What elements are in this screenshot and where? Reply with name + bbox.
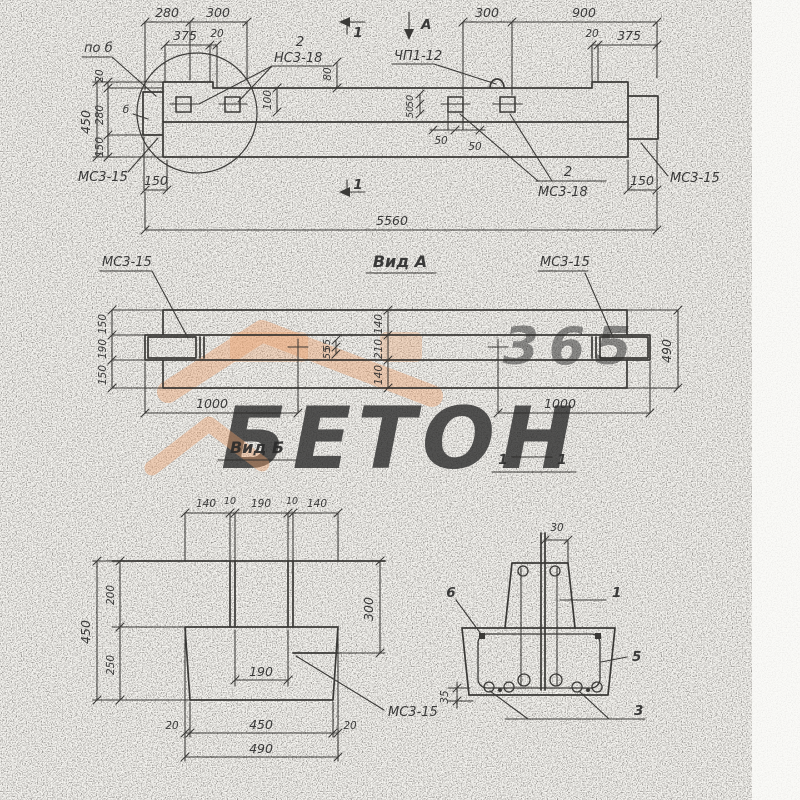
dim-mid-140-bottom: 140 [373,365,385,385]
section-1-1-left: 1 [498,452,507,468]
dim-10-right: 10 [286,496,298,507]
dim-375-left: 375 [173,28,197,43]
dim-900: 900 [572,5,596,20]
label-ms3-15-left: МС3-15 [102,255,152,270]
label-ms3-15: МС3-15 [388,705,438,720]
dim-50-a: 50 [405,95,416,107]
label-2-top: 2 [296,35,304,50]
dim-20-left: 20 [210,28,224,40]
dim-150-bottom-right: 150 [630,173,654,188]
view-arrow-a-label: А [420,17,431,33]
dim-490: 490 [659,339,674,363]
dim-v450: 450 [78,110,93,134]
label-2-bottom: 2 [564,165,572,180]
label-6: 6 [446,585,455,601]
dim-35: 35 [439,690,451,704]
dim-20-left: 20 [165,720,179,732]
dim-300: 300 [361,597,376,621]
dim-left-150-top: 150 [97,314,109,334]
dim-190-inner: 190 [249,664,273,679]
dim-mid-140-top: 140 [373,314,385,334]
anchor-square-right [595,633,601,639]
rebar-dot-right [586,688,590,692]
dim-300-left: 300 [206,5,230,20]
dim-140-right: 140 [307,498,327,510]
dim-left-150-bottom: 150 [97,365,109,385]
label-3: 3 [634,703,643,719]
label-po-b: по б [84,41,113,56]
technical-drawing: БЕТОН 365 [0,0,800,800]
label-ms3-15-right: МС3-15 [670,171,720,186]
dim-1000-left: 1000 [196,396,228,411]
label-ms3-18: МС3-18 [538,185,588,200]
rebar-dot-left [498,688,502,692]
section-mark-1-top-label: 1 [353,25,362,41]
dim-280: 280 [155,5,179,20]
dim-50-d: 50 [468,141,482,153]
label-chp1-12: ЧП1-12 [394,49,442,64]
dim-490: 490 [249,741,273,756]
label-ms3-15-right: МС3-15 [540,255,590,270]
label-ns3-18: НС3-18 [274,51,322,66]
label-ms3-15-left: МС3-15 [78,170,128,185]
label-5: 5 [632,649,641,665]
anchor-square-left [479,633,485,639]
dim-50-b: 50 [405,106,416,118]
dim-v150: 150 [94,137,106,157]
dim-v20: 20 [94,69,106,83]
section-mark-1-bottom-label: 1 [353,177,362,193]
dim-375-right: 375 [617,28,641,43]
dim-10-left: 10 [224,496,236,507]
dim-80: 80 [322,67,334,81]
dim-190-top: 190 [251,498,271,510]
paper-right-margin [752,0,800,800]
dim-140-left: 140 [196,498,216,510]
dim-450-left: 450 [78,620,93,644]
view-a-title: Вид А [373,252,427,271]
dim-5560: 5560 [376,213,408,228]
dim-100: 100 [262,90,274,110]
dim-200: 200 [105,585,117,605]
dim-55-b: 55 [322,347,333,359]
dim-20-right: 20 [585,28,599,40]
dim-300-right: 300 [475,5,499,20]
label-1: 1 [612,585,621,601]
dim-250: 250 [105,655,117,675]
label-b: б [123,104,130,116]
dim-150-bottom-left: 150 [144,173,168,188]
dim-left-190: 190 [97,339,109,359]
dim-450-bottom: 450 [249,717,273,732]
scanned-drawing-page: БЕТОН 365 [0,0,800,800]
dim-20-right: 20 [343,720,357,732]
dim-mid-210: 210 [373,339,385,359]
dim-30: 30 [550,522,564,534]
section-1-1-right: 1 [557,452,566,468]
dim-1000-right: 1000 [544,396,576,411]
dim-50-c: 50 [434,135,448,147]
view-b-title: Вид Б [230,438,284,457]
dim-v280: 280 [94,105,106,125]
watermark-number: 365 [503,317,642,377]
